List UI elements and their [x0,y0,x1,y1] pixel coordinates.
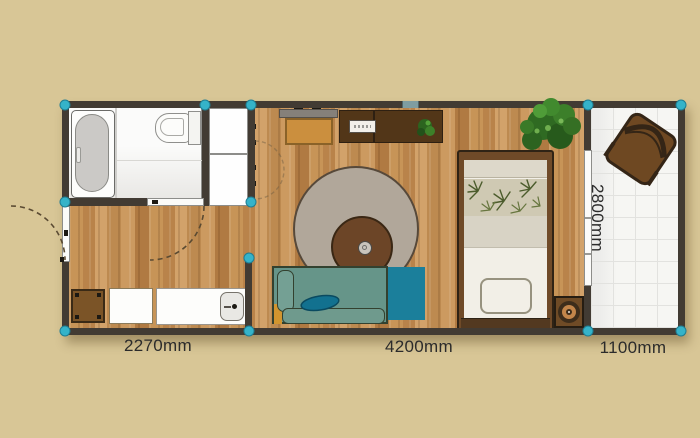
wall-corner-handle[interactable] [244,253,255,264]
wall-corner-handle[interactable] [246,100,257,111]
wall-corner-handle[interactable] [200,100,211,111]
desk-plant-icon [417,119,435,136]
dimension-label-balcony-width: 1100mm [573,338,693,358]
wall-corner-handle[interactable] [676,100,687,111]
wall-corner-handle[interactable] [583,326,594,337]
wall-corner-handle[interactable] [583,100,594,111]
corner-plant-icon[interactable] [520,98,581,150]
wall-corner-handle[interactable] [60,197,71,208]
wall-corner-handle[interactable] [246,197,257,208]
dimension-label-left-width: 2270mm [98,336,218,356]
wall-corner-handle[interactable] [60,100,71,111]
balcony-chair[interactable] [604,111,678,187]
wall-corner-handle[interactable] [60,326,71,337]
dimension-label-living-width: 4200mm [359,337,479,357]
wall-corner-handle[interactable] [676,326,687,337]
sofa-pillow [300,293,340,313]
wall-corner-handle[interactable] [244,326,255,337]
entry-door-swing-arc [11,206,65,260]
bathroom-door-swing-arc [150,206,204,260]
cabinet-door-swing-arc [255,141,284,199]
floor-plan-canvas: 2270mm 4200mm 1100mm 2800mm [0,0,700,438]
dimension-label-depth: 2800mm [587,184,607,252]
